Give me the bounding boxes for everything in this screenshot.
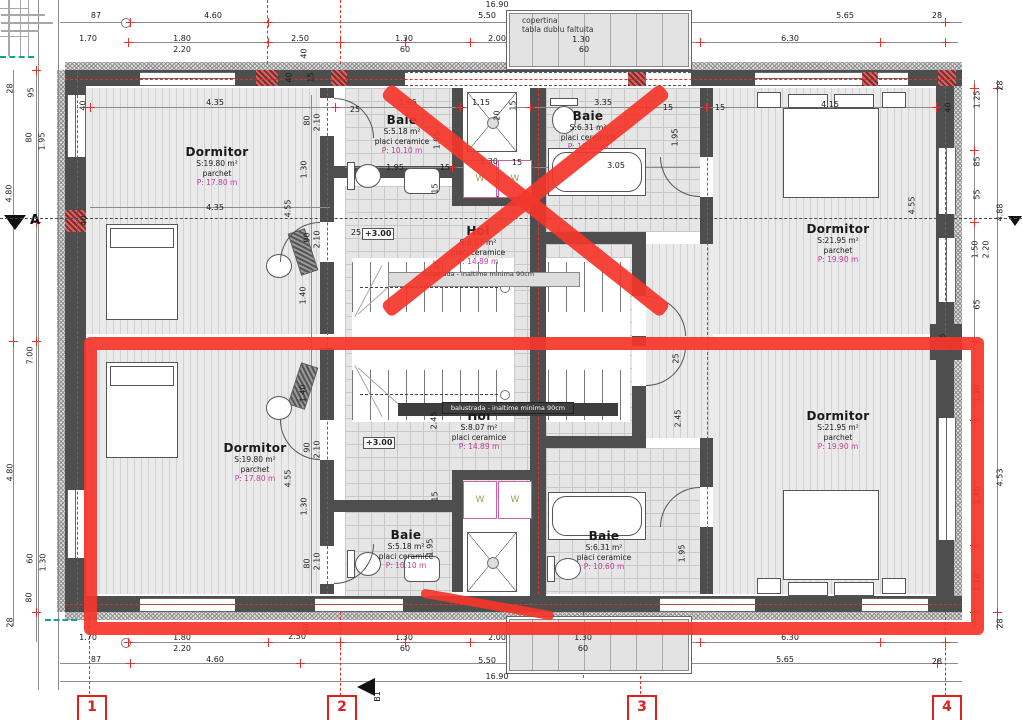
scale-strip bbox=[28, 0, 29, 56]
axis-a-label: A bbox=[30, 213, 40, 228]
dimension-tick bbox=[124, 638, 133, 647]
dimension-label: 2.20 bbox=[160, 45, 204, 54]
dimension-label: 87 bbox=[74, 11, 118, 20]
grid-marker-1: 1 bbox=[77, 695, 107, 720]
dimension-label: 20 bbox=[493, 94, 502, 138]
dimension-label: 4.35 bbox=[193, 203, 237, 212]
dimension-label: 28 bbox=[996, 64, 1005, 108]
grid-marker-2: 2 bbox=[327, 695, 357, 720]
illegible-annotation bbox=[1, 30, 39, 32]
dimension-label: 40 bbox=[944, 86, 953, 130]
dimension-label: 40 bbox=[79, 84, 88, 128]
dimension-tick bbox=[336, 638, 345, 647]
dimension-label: 3.35 bbox=[581, 98, 625, 107]
dimension-label: 2.10 bbox=[313, 218, 322, 262]
dimension-label: 80 bbox=[303, 99, 312, 143]
dimension-label: 60 bbox=[561, 644, 605, 653]
pillow-icon bbox=[110, 228, 174, 248]
canopy-label-line1: copertina bbox=[522, 16, 558, 25]
dimension-label: 60 bbox=[383, 45, 427, 54]
nightstand-icon bbox=[757, 92, 781, 108]
dimension-label: 7.00 bbox=[26, 334, 35, 378]
dimension-line bbox=[60, 681, 962, 682]
dimension-label: 1.95 bbox=[671, 116, 680, 160]
dimension-tick bbox=[124, 38, 133, 47]
dimension-label: 40 bbox=[80, 199, 89, 243]
dimension-label: 1.30 bbox=[559, 35, 603, 44]
dimension-label: 2.20 bbox=[160, 644, 204, 653]
utility-line bbox=[45, 619, 77, 621]
centerline-red bbox=[340, 0, 341, 64]
dimension-label: 25 bbox=[333, 105, 377, 114]
dimension-tick bbox=[970, 218, 979, 227]
dimension-label: 40 bbox=[285, 56, 294, 100]
dimension-tick bbox=[126, 18, 135, 27]
dimension-tick bbox=[696, 638, 705, 647]
dimension-label: 2.10 bbox=[313, 101, 322, 145]
dimension-line bbox=[997, 80, 998, 630]
dimension-label: 1.70 bbox=[66, 34, 110, 43]
grid-marker-3: 3 bbox=[627, 695, 657, 720]
room-label: DormitorS:19.80 m²parchetP: 17.80 m bbox=[152, 146, 282, 188]
dimension-label: 28 bbox=[6, 601, 15, 645]
dimension-tick bbox=[336, 38, 345, 47]
dimension-tick bbox=[941, 638, 950, 647]
room-area: S:21.95 m² bbox=[773, 236, 903, 246]
dimension-label: 15 bbox=[307, 56, 316, 100]
room-perimeter: P: 17.80 m bbox=[152, 178, 282, 188]
room-name: Dormitor bbox=[773, 223, 903, 236]
dimension-label: 1.50 bbox=[971, 228, 980, 272]
dimension-label: 80 bbox=[25, 576, 34, 620]
room-name: Dormitor bbox=[152, 146, 282, 159]
illegible-annotation bbox=[1, 22, 53, 24]
floor-plan-canvas: copertina tabla dublu faltuita bbox=[0, 0, 1022, 720]
dimension-label: 5.50 bbox=[465, 656, 509, 665]
dimension-label: 5.65 bbox=[763, 655, 807, 664]
dimension-tick bbox=[9, 337, 18, 346]
dimension-label: 1.25 bbox=[973, 78, 982, 122]
dimension-label: 4.15 bbox=[808, 100, 852, 109]
toilet-tank-icon bbox=[550, 98, 578, 106]
dimension-label: 5.50 bbox=[465, 11, 509, 20]
dimension-label: 16.90 bbox=[475, 672, 519, 681]
dimension-label: 4.80 bbox=[6, 451, 15, 495]
centerline-red bbox=[77, 70, 78, 610]
dimension-label: 4.53 bbox=[996, 456, 1005, 500]
dimension-label: 2.00 bbox=[475, 34, 519, 43]
dimension-label: 5.65 bbox=[823, 11, 867, 20]
dimension-label: 1.30 bbox=[382, 34, 426, 43]
dimension-tick bbox=[126, 659, 135, 668]
dimension-label: 28 bbox=[915, 657, 959, 666]
dimension-label: 60 bbox=[562, 45, 606, 54]
dimension-line bbox=[13, 70, 14, 626]
dimension-label: 1.30 bbox=[300, 148, 309, 192]
dimension-label: 15 bbox=[495, 158, 539, 167]
dimension-label: 1.95 bbox=[38, 120, 47, 164]
nightstand-icon bbox=[882, 92, 906, 108]
dimension-label: 28 bbox=[996, 602, 1005, 646]
structural-pier bbox=[938, 70, 956, 86]
dimension-tick bbox=[264, 38, 273, 47]
centerline-red bbox=[267, 0, 268, 64]
dimension-tick bbox=[941, 38, 950, 47]
dimension-label: 1.40 bbox=[299, 274, 308, 318]
dimension-label: 4.55 bbox=[908, 184, 917, 228]
dimension-tick bbox=[876, 638, 885, 647]
dimension-label: 1.30 bbox=[39, 541, 48, 585]
dimension-tick bbox=[932, 103, 941, 112]
dimension-label: 16.90 bbox=[475, 0, 519, 9]
dimension-label: 4.60 bbox=[191, 11, 235, 20]
room-finish: parchet bbox=[152, 169, 282, 179]
dimension-tick bbox=[264, 638, 273, 647]
dimension-tick bbox=[466, 38, 475, 47]
structural-pier bbox=[256, 70, 278, 86]
grid-marker-4: 4 bbox=[932, 695, 962, 720]
level-marker: +3.00 bbox=[362, 228, 394, 240]
room-finish: parchet bbox=[773, 246, 903, 256]
dimension-label: 55 bbox=[973, 173, 982, 217]
dimension-label: 95 bbox=[27, 71, 36, 115]
dimension-label: 87 bbox=[74, 655, 118, 664]
red-outline-annotation bbox=[84, 337, 984, 635]
room-name: Baie bbox=[337, 114, 467, 127]
dimension-label: 15 bbox=[509, 84, 518, 128]
section-b1-label: B1 bbox=[373, 691, 382, 702]
dimension-tick bbox=[264, 18, 273, 27]
window bbox=[938, 148, 956, 214]
room-label: DormitorS:21.95 m²parchetP: 19.90 m bbox=[773, 223, 903, 265]
double-bed-icon bbox=[783, 108, 879, 198]
dimension-label: 4.35 bbox=[193, 98, 237, 107]
centerline-red bbox=[65, 79, 962, 80]
dimension-label: 1.95 bbox=[373, 163, 417, 172]
canopy-label-line2: tabla dublu faltuita bbox=[522, 25, 594, 34]
dimension-label: 4.88 bbox=[996, 191, 1005, 235]
dimension-label: 15 bbox=[698, 103, 742, 112]
scale-strip bbox=[0, 36, 28, 37]
dimension-label: 65 bbox=[973, 283, 982, 327]
dimension-label: 1.80 bbox=[160, 34, 204, 43]
dimension-label: 3.05 bbox=[594, 161, 638, 170]
structural-pier bbox=[331, 70, 347, 86]
dimension-line bbox=[58, 0, 59, 690]
dimension-label: 60 bbox=[383, 644, 427, 653]
dimension-label: 80 bbox=[25, 116, 34, 160]
toilet-tank-icon bbox=[347, 162, 355, 190]
dimension-label: 6.30 bbox=[768, 34, 812, 43]
dimension-label: 4.80 bbox=[5, 172, 14, 216]
scale-strip bbox=[0, 8, 28, 9]
window bbox=[938, 238, 956, 302]
room-perimeter: P: 19.90 m bbox=[773, 255, 903, 265]
dimension-tick bbox=[696, 38, 705, 47]
dimension-tick bbox=[876, 38, 885, 47]
room-area: S:19.80 m² bbox=[152, 159, 282, 169]
dimension-tick bbox=[296, 659, 305, 668]
dimension-label: 28 bbox=[6, 67, 15, 111]
dimension-label: 15 bbox=[431, 167, 440, 211]
dimension-label: 2.20 bbox=[982, 228, 991, 272]
utility-line bbox=[0, 56, 34, 58]
dimension-label: 4.55 bbox=[284, 187, 293, 231]
dimension-label: 90 bbox=[303, 216, 312, 260]
illegible-annotation bbox=[1, 14, 45, 16]
dimension-tick bbox=[466, 638, 475, 647]
dimension-label: 60 bbox=[26, 537, 35, 581]
dimension-label: 28 bbox=[915, 11, 959, 20]
dimension-label: 4.60 bbox=[193, 655, 237, 664]
